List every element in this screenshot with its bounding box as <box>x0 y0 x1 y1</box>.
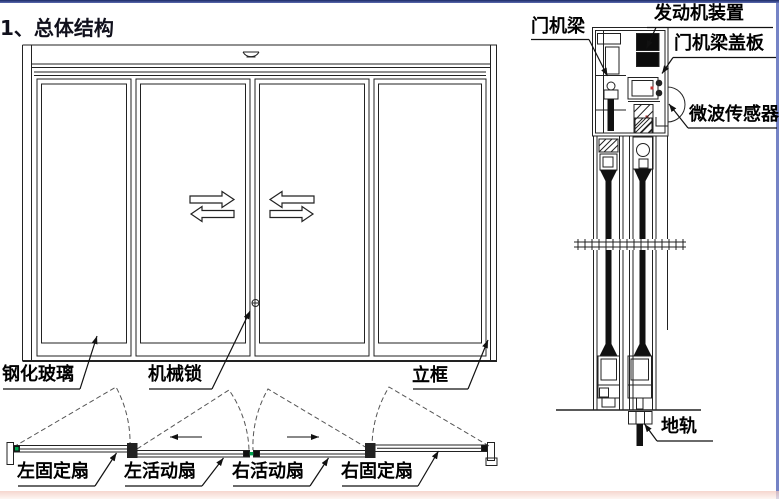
pivot-block-left <box>128 444 138 458</box>
page-title: 1、总体结构 <box>0 12 114 41</box>
door-panel-right-fixed <box>374 79 486 356</box>
front-view-drawing <box>23 45 498 361</box>
section-view-drawing <box>556 28 701 447</box>
label-tempered-glass: 钢化玻璃 <box>2 364 74 385</box>
label-left-fixed-panel: 左固定扇 <box>17 461 89 482</box>
motor-block <box>637 53 660 67</box>
door-panel-left-fixed <box>37 79 131 356</box>
left-end-jamb <box>7 443 14 465</box>
label-mechanical-lock: 机械锁 <box>148 364 202 385</box>
motor-block <box>637 34 660 51</box>
plan-view-drawing <box>7 387 497 466</box>
label-microwave-sensor: 微波传感器 <box>689 104 779 125</box>
pivot-block-right <box>366 444 376 458</box>
slide: 1、总体结构 钢化玻璃 机械锁 立框 左固定扇 左活动扇 右活动扇 右固定扇 门… <box>0 0 779 499</box>
label-beam-cover: 门机梁盖板 <box>674 33 764 54</box>
label-right-fixed-panel: 右固定扇 <box>341 461 413 482</box>
swap-arrows-icon-left <box>190 192 234 222</box>
swap-arrows-icon-right <box>270 192 314 222</box>
guide-dot-left <box>15 447 19 451</box>
label-motor-unit: 发动机装置 <box>654 3 744 24</box>
label-right-sliding-panel: 右活动扇 <box>232 461 304 482</box>
glass-leaf-section <box>606 181 612 346</box>
label-floor-track: 地轨 <box>661 416 697 437</box>
guide-dot-center <box>250 452 253 455</box>
floor-track-section <box>629 412 653 425</box>
motion-sensor-icon <box>243 52 259 57</box>
glass-leaf-section <box>640 181 646 346</box>
label-left-sliding-panel: 左活动扇 <box>124 461 196 482</box>
label-vertical-frame: 立框 <box>412 365 448 386</box>
label-door-operator-beam: 门机梁 <box>531 16 585 37</box>
swing-arc-dashed <box>14 387 490 450</box>
